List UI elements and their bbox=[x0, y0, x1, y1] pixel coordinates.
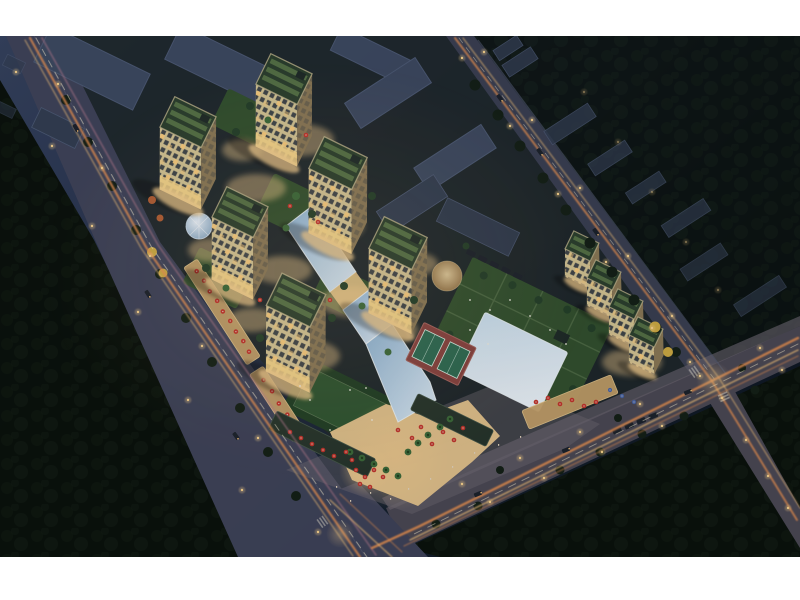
bottom-white-margin bbox=[0, 557, 800, 600]
rendering-canvas bbox=[0, 36, 800, 557]
top-white-margin bbox=[0, 0, 800, 36]
atmosphere-vignette bbox=[0, 36, 800, 557]
screenshot-frame: Aerial night rendering of an illuminated… bbox=[0, 0, 800, 600]
